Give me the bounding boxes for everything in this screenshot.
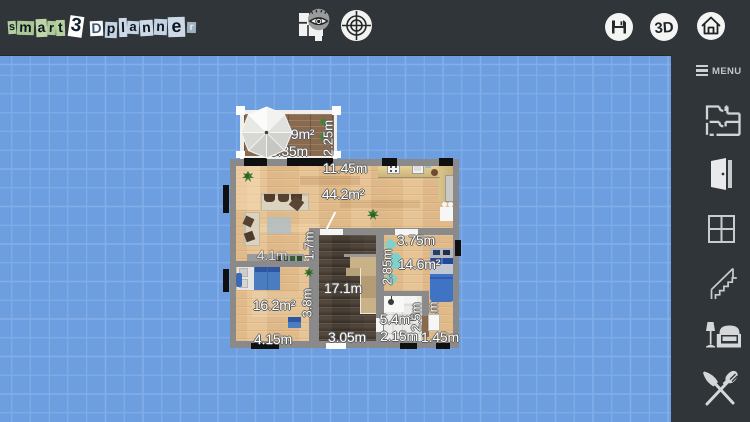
svg-text:3D: 3D (654, 18, 674, 36)
